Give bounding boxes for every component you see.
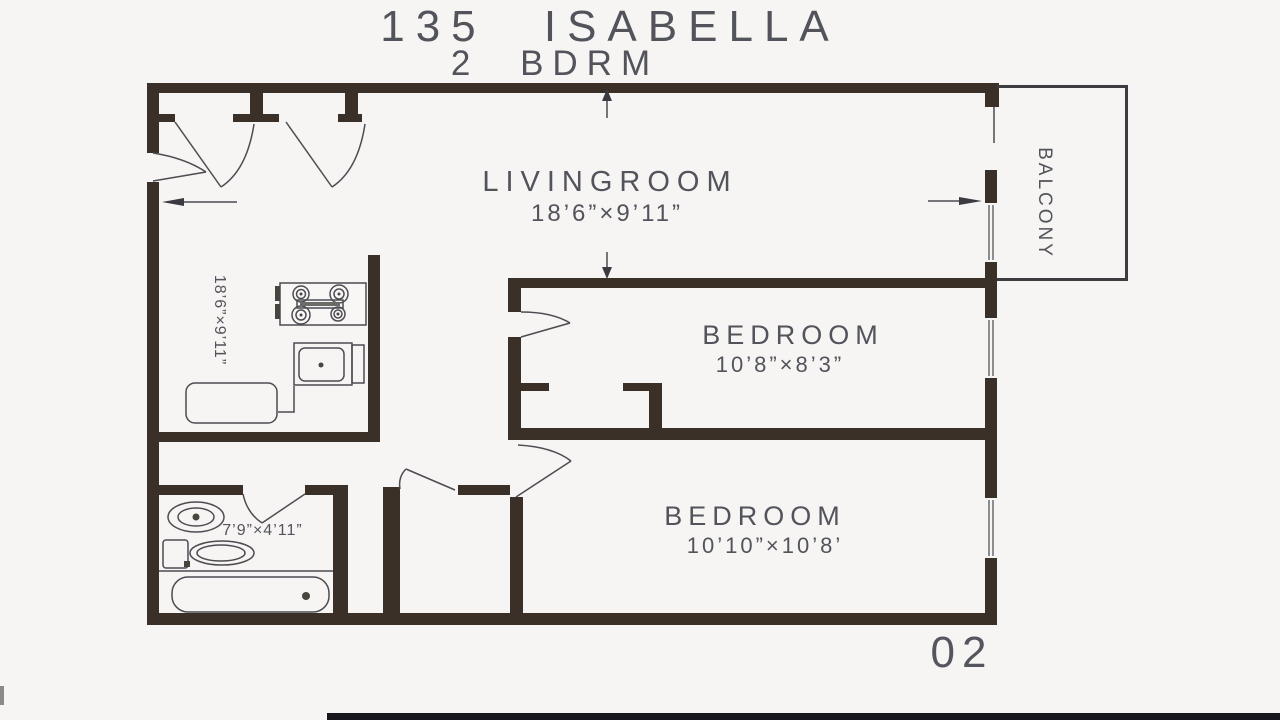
sheet-number: 02 bbox=[862, 628, 1062, 678]
bedroom2-dims: 10’10”×10’8’ bbox=[610, 533, 920, 559]
toilet bbox=[163, 540, 254, 568]
bathtub bbox=[159, 571, 333, 612]
bedroom1-dims: 10’8”×8’3” bbox=[640, 352, 920, 378]
bedroom2-label: BEDROOM bbox=[600, 501, 910, 532]
closet-door-left bbox=[175, 122, 254, 187]
bathroom-dims: 7’9”×4’11” bbox=[185, 522, 340, 540]
floor-plan-sheet: 135 ISABELLA 2 BDRM bbox=[0, 0, 1280, 720]
kitchen-counter bbox=[186, 383, 294, 423]
bedroom1-door bbox=[521, 312, 570, 337]
sliding-door-panel bbox=[989, 205, 993, 260]
arrow-down bbox=[602, 252, 612, 279]
closet-door-right bbox=[286, 122, 365, 187]
bedroom2-door bbox=[516, 445, 571, 497]
bedroom1-window bbox=[989, 320, 993, 376]
entry-arrow bbox=[162, 198, 237, 206]
hall-closet-door bbox=[400, 469, 455, 490]
bedroom1-label: BEDROOM bbox=[640, 320, 946, 351]
livingroom-label: LIVINGROOM bbox=[440, 166, 780, 199]
livingroom-dims: 18’6”×9’11” bbox=[440, 200, 774, 228]
bedroom2-window bbox=[989, 500, 993, 556]
scan-edge-mark bbox=[0, 686, 4, 705]
footer-bar bbox=[327, 713, 1280, 720]
stove bbox=[275, 283, 366, 325]
kitchen-sink bbox=[294, 343, 364, 385]
balcony-arrow bbox=[928, 197, 982, 205]
arrow-up bbox=[602, 89, 612, 118]
entry-door bbox=[153, 153, 206, 181]
bathroom-door bbox=[243, 494, 305, 523]
kitchen-dims: 18’6”×9’11” bbox=[208, 240, 228, 400]
balcony-label: BALCONY bbox=[1035, 143, 1055, 263]
